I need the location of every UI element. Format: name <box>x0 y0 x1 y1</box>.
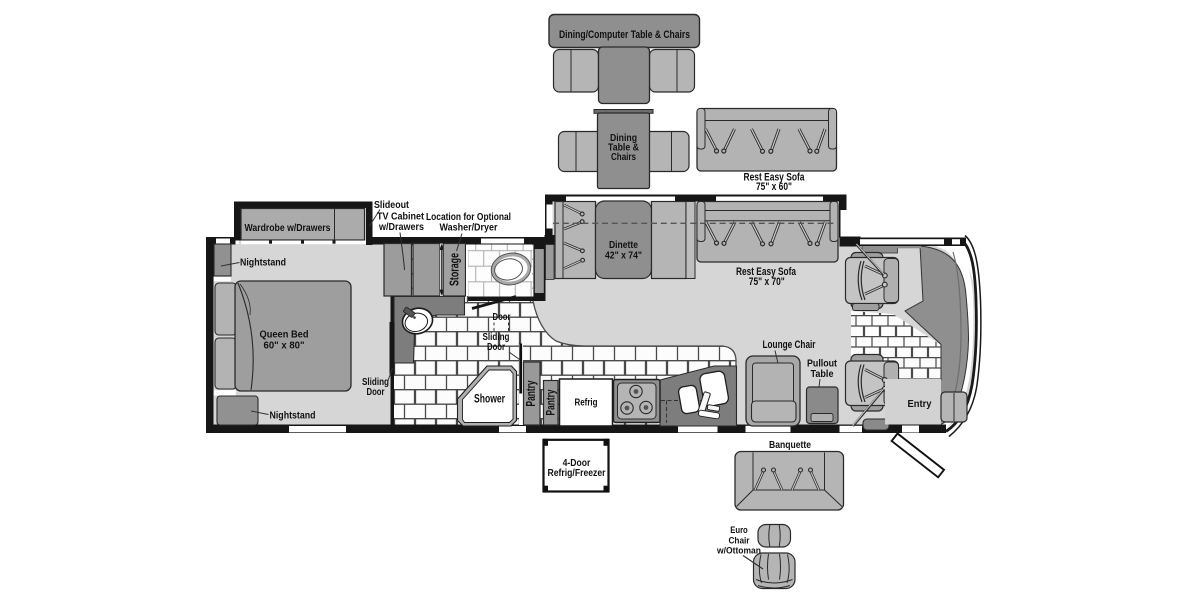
svg-text:Pantry: Pantry <box>524 380 538 406</box>
svg-text:Door: Door <box>487 342 505 353</box>
svg-text:Banquette: Banquette <box>769 440 811 451</box>
svg-text:TV Cabinet: TV Cabinet <box>377 211 425 222</box>
svg-text:w/Drawers: w/Drawers <box>378 222 424 233</box>
svg-text:Door: Door <box>493 312 511 323</box>
svg-text:Door: Door <box>367 387 385 398</box>
svg-text:Wardrobe w/Drawers: Wardrobe w/Drawers <box>245 223 331 234</box>
svg-text:Chairs: Chairs <box>611 152 636 163</box>
svg-text:Slideout: Slideout <box>374 200 410 211</box>
svg-text:Lounge Chair: Lounge Chair <box>763 339 817 351</box>
svg-text:w/Ottoman: w/Ottoman <box>716 546 761 557</box>
svg-text:Entry: Entry <box>908 399 932 410</box>
svg-text:Dining/Computer Table & Chairs: Dining/Computer Table & Chairs <box>559 29 690 41</box>
svg-text:Location for Optional: Location for Optional <box>426 212 511 223</box>
svg-text:42" x 74": 42" x 74" <box>605 250 642 261</box>
svg-text:60" x 80": 60" x 80" <box>264 340 305 352</box>
svg-text:Storage: Storage <box>448 253 462 286</box>
svg-text:Washer/Dryer: Washer/Dryer <box>440 222 498 233</box>
svg-text:Pantry: Pantry <box>543 389 557 415</box>
svg-text:Refrig: Refrig <box>575 398 598 409</box>
svg-text:Nightstand: Nightstand <box>270 410 316 422</box>
svg-text:75" x 60": 75" x 60" <box>756 181 792 193</box>
svg-text:Table: Table <box>811 368 834 380</box>
svg-text:Refrig/Freezer: Refrig/Freezer <box>548 468 606 479</box>
svg-text:Shower: Shower <box>474 394 505 406</box>
svg-text:Euro: Euro <box>730 525 748 536</box>
svg-text:Nightstand: Nightstand <box>240 257 286 269</box>
svg-text:75" x 70": 75" x 70" <box>749 276 785 288</box>
